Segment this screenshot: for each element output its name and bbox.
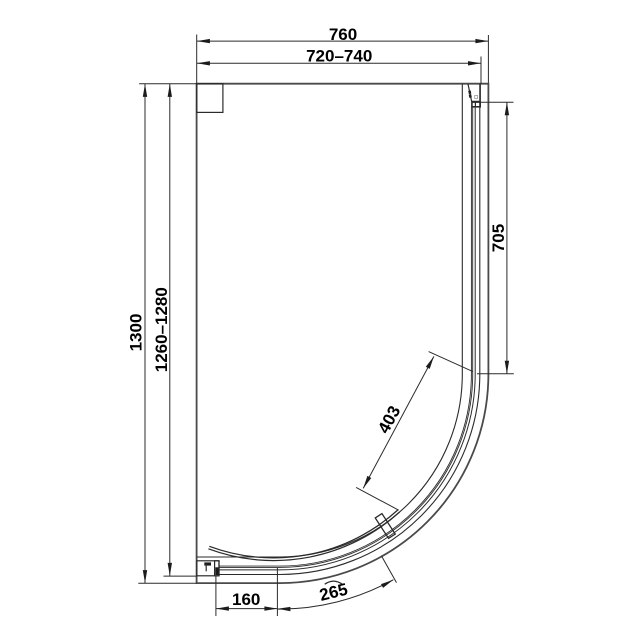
svg-text:760: 760	[329, 25, 357, 44]
svg-text:160: 160	[232, 590, 260, 609]
svg-text:1260–1280: 1260–1280	[152, 287, 171, 372]
svg-text:720–740: 720–740	[306, 47, 372, 66]
svg-text:705: 705	[489, 224, 508, 252]
svg-text:1300: 1300	[126, 314, 145, 352]
